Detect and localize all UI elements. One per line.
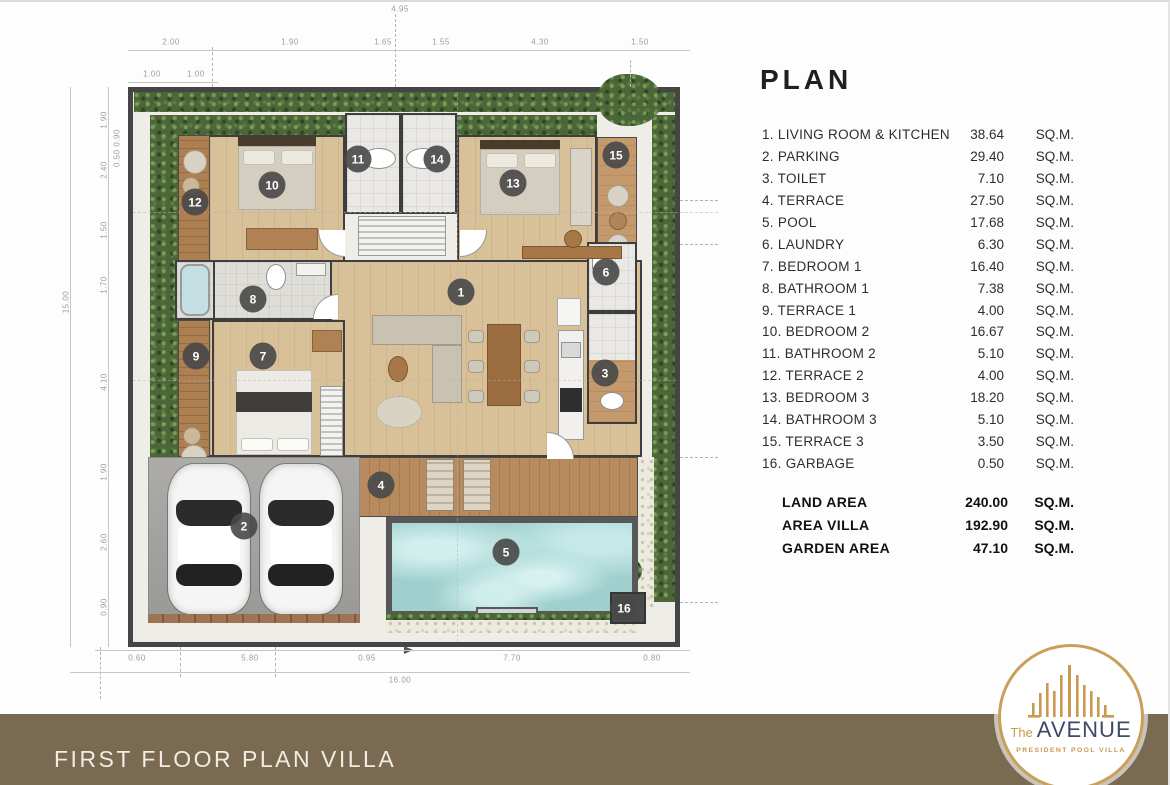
room-area-value: 38.64: [952, 127, 1004, 142]
dining-chair-icon: [468, 360, 484, 373]
room-marker-6: 6: [593, 259, 620, 286]
car-roof-icon: [270, 526, 332, 564]
room-area-value: 29.40: [952, 149, 1004, 164]
room-area-value: 4.00: [952, 303, 1004, 318]
room-name: 16. GARBAGE: [762, 456, 952, 471]
legend-row: 5. POOL17.68SQ.M.: [762, 212, 1074, 234]
legend-row: 6. LAUNDRY6.30SQ.M.: [762, 233, 1074, 255]
pebble-strip: [386, 619, 638, 633]
room-marker-13: 13: [500, 170, 527, 197]
legend-row: 16. GARBAGE0.50SQ.M.: [762, 452, 1074, 474]
dining-chair-icon: [524, 390, 540, 403]
legend-row: 10. BEDROOM 216.67SQ.M.: [762, 321, 1074, 343]
area-unit: SQ.M.: [1004, 127, 1074, 142]
dimension-label: 4.95: [391, 5, 409, 14]
gravel-path-right: [638, 457, 654, 607]
area-unit: SQ.M.: [1004, 193, 1074, 208]
dimension-label: 1.90: [100, 463, 109, 481]
terrace-table-icon: [183, 150, 207, 174]
room-marker-11: 11: [345, 146, 372, 173]
room-marker-5: 5: [493, 539, 520, 566]
legend-row: 8. BATHROOM 17.38SQ.M.: [762, 277, 1074, 299]
toilet-floor: [589, 314, 635, 360]
logo-subtitle: PRESIDENT POOL VILLA: [1016, 747, 1125, 754]
reference-line: [457, 92, 458, 642]
room-name: 3. TOILET: [762, 171, 952, 186]
room-name: 4. TERRACE: [762, 193, 952, 208]
room-name: 10. BEDROOM 2: [762, 324, 952, 339]
dimension-line: [128, 50, 690, 51]
pillow-icon: [281, 150, 313, 165]
room-area-value: 7.10: [952, 171, 1004, 186]
reference-line: [680, 244, 718, 245]
dimension-label: 0.90: [100, 598, 109, 616]
car: [260, 464, 342, 614]
hedge-row-right: [457, 115, 597, 136]
room-area-value: 27.50: [952, 193, 1004, 208]
area-unit: SQ.M.: [1004, 368, 1074, 383]
area-unit: SQ.M.: [1004, 281, 1074, 296]
desk-icon: [312, 330, 342, 352]
toilet-icon: [266, 264, 286, 290]
room-name: 15. TERRACE 3: [762, 434, 952, 449]
legend-total-row: LAND AREA240.00SQ.M.: [782, 490, 1074, 513]
dining-chair-icon: [468, 390, 484, 403]
dimension-label: 1.65: [374, 38, 392, 47]
reference-line: [680, 602, 718, 603]
legend-row: 7. BEDROOM 116.40SQ.M.: [762, 255, 1074, 277]
dimension-label: 5.80: [241, 654, 259, 663]
room-area-value: 18.20: [952, 390, 1004, 405]
room-name: 12. TERRACE 2: [762, 368, 952, 383]
reference-line: [212, 47, 213, 87]
skylight-icon: [557, 298, 581, 326]
room-name: 14. BATHROOM 3: [762, 412, 952, 427]
dining-chair-icon: [524, 330, 540, 343]
area-unit: SQ.M.: [1004, 346, 1074, 361]
area-unit: SQ.M.: [1004, 390, 1074, 405]
area-unit: SQ.M.: [1004, 215, 1074, 230]
blanket-icon: [236, 392, 312, 412]
area-unit: SQ.M.: [1004, 149, 1074, 164]
room-marker-4: 4: [368, 472, 395, 499]
car-roof-icon: [178, 526, 240, 564]
pillow-icon: [524, 153, 556, 168]
room-area-value: 6.30: [952, 237, 1004, 252]
page-title: FIRST FLOOR PLAN VILLA: [54, 746, 396, 773]
room-name: 13. BEDROOM 3: [762, 390, 952, 405]
pillow-icon: [486, 153, 518, 168]
skyline-icon: [1027, 663, 1115, 719]
area-unit: SQ.M.: [1008, 517, 1074, 533]
total-name: GARDEN AREA: [782, 540, 948, 556]
rug-icon: [376, 396, 422, 428]
room-pool: [386, 517, 638, 617]
room-name: 5. POOL: [762, 215, 952, 230]
bed-headboard-icon: [238, 137, 316, 146]
reference-line: [680, 457, 718, 458]
room-area-value: 3.50: [952, 434, 1004, 449]
legend-title: PLAN: [760, 64, 852, 96]
room-name: 7. BEDROOM 1: [762, 259, 952, 274]
pillow-icon: [277, 438, 309, 451]
reference-line: [630, 60, 631, 87]
dimension-label: 0.80: [643, 654, 661, 663]
terrace-table-icon: [609, 212, 627, 230]
room-marker-9: 9: [183, 343, 210, 370]
hedge-pool-edge: [386, 613, 638, 620]
room-marker-2: 2: [231, 513, 258, 540]
area-unit: SQ.M.: [1004, 171, 1074, 186]
room-marker-1: 1: [448, 279, 475, 306]
car: [168, 464, 250, 614]
floor-plan-sheet: 12345678910111213141516 4.952.001.901.65…: [0, 0, 1170, 785]
car-windshield-icon: [268, 500, 334, 526]
room-name: 9. TERRACE 1: [762, 303, 952, 318]
dimension-label: 1.00: [187, 70, 205, 79]
legend-row: 11. BATHROOM 25.10SQ.M.: [762, 343, 1074, 365]
area-unit: SQ.M.: [1004, 324, 1074, 339]
room-marker-14: 14: [424, 146, 451, 173]
plant-pot-icon: [183, 427, 201, 445]
room-marker-7: 7: [250, 343, 277, 370]
dimension-label: 4.10: [100, 373, 109, 391]
sink-icon: [561, 342, 581, 358]
hedge-left-column: [150, 115, 178, 460]
wardrobe: [320, 386, 343, 456]
footer-bar: FIRST FLOOR PLAN VILLA: [0, 714, 1170, 785]
pool-water: [392, 523, 632, 611]
wardrobe: [358, 216, 446, 256]
dimension-label: 2.60: [100, 533, 109, 551]
desk-icon: [246, 228, 318, 250]
dimension-label: 0.95: [358, 654, 376, 663]
dining-table-icon: [487, 324, 521, 406]
side-table-icon: [564, 230, 582, 248]
bed-headboard-icon: [480, 140, 560, 149]
area-unit: SQ.M.: [1004, 303, 1074, 318]
room-area-value: 4.00: [952, 368, 1004, 383]
dimension-line: [95, 650, 690, 651]
bathtub-icon: [180, 264, 210, 316]
logo-the: The: [1010, 725, 1032, 740]
total-name: AREA VILLA: [782, 517, 948, 533]
dimension-line: [128, 82, 218, 83]
room-area-value: 17.68: [952, 215, 1004, 230]
terrace-chair-icon: [607, 185, 629, 207]
dimension-line: [70, 672, 690, 673]
logo: The AVENUE PRESIDENT POOL VILLA: [998, 644, 1144, 785]
sofa-icon: [372, 315, 462, 345]
room-marker-15: 15: [603, 142, 630, 169]
room-area-value: 16.40: [952, 259, 1004, 274]
room-name: 6. LAUNDRY: [762, 237, 952, 252]
dimension-label: 1.90: [281, 38, 299, 47]
area-unit: SQ.M.: [1008, 494, 1074, 510]
reference-line: [680, 200, 718, 201]
total-name: LAND AREA: [782, 494, 948, 510]
reference-line: [133, 212, 718, 213]
dimension-label: 4.30: [531, 38, 549, 47]
area-unit: SQ.M.: [1008, 540, 1074, 556]
legend-row: 4. TERRACE27.50SQ.M.: [762, 190, 1074, 212]
room-marker-8: 8: [240, 286, 267, 313]
room-name: 2. PARKING: [762, 149, 952, 164]
dining-chair-icon: [468, 330, 484, 343]
driveway-paving: [148, 614, 360, 623]
legend-row: 2. PARKING29.40SQ.M.: [762, 146, 1074, 168]
toilet-icon: [600, 392, 624, 410]
dimension-label: 1.00: [143, 70, 161, 79]
sink-icon: [296, 263, 326, 276]
room-area-value: 5.10: [952, 346, 1004, 361]
room-marker-12: 12: [182, 189, 209, 216]
legend-total-row: AREA VILLA192.90SQ.M.: [782, 513, 1074, 536]
pillow-icon: [243, 150, 275, 165]
hedge-row-left: [150, 115, 346, 136]
dimension-label: 2.00: [162, 38, 180, 47]
car-rear-window-icon: [268, 564, 334, 586]
room-terrace: [358, 457, 638, 517]
dimension-label: 16.00: [389, 676, 412, 685]
total-value: 47.10: [948, 540, 1008, 556]
reference-line: [100, 647, 101, 699]
room-area-value: 0.50: [952, 456, 1004, 471]
legend-rows: 1. LIVING ROOM & KITCHEN38.64SQ.M.2. PAR…: [762, 124, 1074, 474]
stove-icon: [560, 388, 582, 412]
area-unit: SQ.M.: [1004, 237, 1074, 252]
room-marker-10: 10: [259, 172, 286, 199]
sun-lounger-icon: [463, 459, 491, 511]
area-unit: SQ.M.: [1004, 259, 1074, 274]
room-area-value: 7.38: [952, 281, 1004, 296]
dimension-line: [70, 87, 71, 647]
legend-row: 1. LIVING ROOM & KITCHEN38.64SQ.M.: [762, 124, 1074, 146]
dimension-label: 1.50: [631, 38, 649, 47]
dining-chair-icon: [524, 360, 540, 373]
dimension-label: 1.55: [432, 38, 450, 47]
legend-row: 14. BATHROOM 35.10SQ.M.: [762, 409, 1074, 431]
legend-total-row: GARDEN AREA47.10SQ.M.: [782, 536, 1074, 559]
legend-row: 15. TERRACE 33.50SQ.M.: [762, 430, 1074, 452]
legend-row: 9. TERRACE 14.00SQ.M.: [762, 299, 1074, 321]
room-name: 11. BATHROOM 2: [762, 346, 952, 361]
dimension-label: 0.60: [128, 654, 146, 663]
legend-row: 12. TERRACE 24.00SQ.M.: [762, 365, 1074, 387]
area-unit: SQ.M.: [1004, 412, 1074, 427]
car-rear-window-icon: [176, 564, 242, 586]
hedge-right-column: [652, 115, 675, 602]
bench-icon: [570, 148, 592, 226]
dimension-label: 7.70: [503, 654, 521, 663]
room-marker-16: 16: [611, 595, 638, 622]
sun-lounger-icon: [426, 459, 454, 511]
dimension-label: 1.90: [100, 111, 109, 129]
room-area-value: 16.67: [952, 324, 1004, 339]
total-value: 192.90: [948, 517, 1008, 533]
legend-row: 3. TOILET7.10SQ.M.: [762, 168, 1074, 190]
pillow-icon: [241, 438, 273, 451]
dimension-label: 2.40: [100, 161, 109, 179]
floor-plan: 12345678910111213141516 4.952.001.901.65…: [0, 2, 760, 714]
legend-totals: LAND AREA240.00SQ.M.AREA VILLA192.90SQ.M…: [782, 490, 1074, 559]
area-unit: SQ.M.: [1004, 434, 1074, 449]
dimension-label: 15.00: [62, 291, 71, 314]
logo-avenue: AVENUE: [1037, 717, 1132, 743]
area-unit: SQ.M.: [1004, 456, 1074, 471]
coffee-table-icon: [388, 356, 408, 382]
legend-row: 13. BEDROOM 318.20SQ.M.: [762, 387, 1074, 409]
total-value: 240.00: [948, 494, 1008, 510]
room-name: 8. BATHROOM 1: [762, 281, 952, 296]
room-area-value: 5.10: [952, 412, 1004, 427]
hedge-top: [134, 92, 675, 112]
dimension-label: 0.50 0.90: [113, 129, 122, 167]
dimension-label: 1.50: [100, 221, 109, 239]
logo-name: The AVENUE: [1010, 717, 1131, 743]
room-name: 1. LIVING ROOM & KITCHEN: [762, 127, 952, 142]
room-marker-3: 3: [592, 360, 619, 387]
dimension-label: 1.70: [100, 276, 109, 294]
